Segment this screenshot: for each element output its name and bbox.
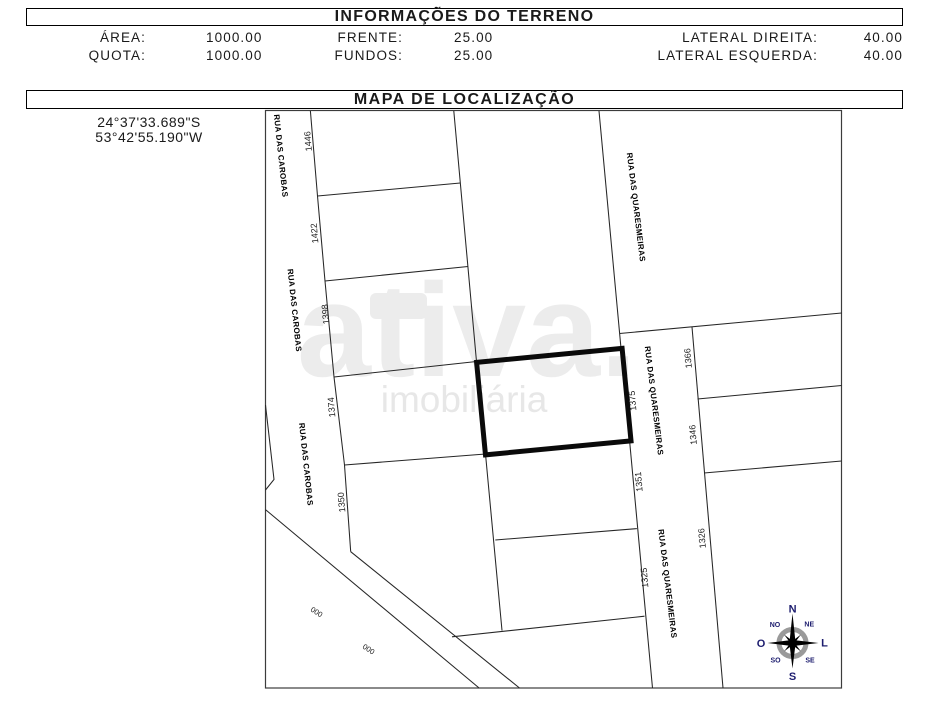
- svg-text:1422: 1422: [309, 223, 321, 244]
- svg-text:NO: NO: [770, 622, 781, 629]
- svg-text:RUA DAS QUARESMEIRAS: RUA DAS QUARESMEIRAS: [625, 152, 647, 262]
- svg-text:000: 000: [361, 642, 376, 656]
- svg-text:SE: SE: [805, 658, 815, 665]
- svg-text:1326: 1326: [696, 528, 708, 549]
- svg-text:imobiliária: imobiliária: [381, 379, 548, 420]
- svg-text:1398: 1398: [320, 304, 332, 325]
- svg-text:000: 000: [309, 605, 324, 619]
- svg-text:RUA DAS QUARESMEIRAS: RUA DAS QUARESMEIRAS: [656, 529, 678, 639]
- svg-text:RUA DAS QUARESMEIRAS: RUA DAS QUARESMEIRAS: [643, 346, 665, 456]
- svg-text:N: N: [789, 604, 797, 616]
- svg-text:RUA DAS CAROBAS: RUA DAS CAROBAS: [297, 422, 315, 506]
- svg-text:O: O: [757, 638, 766, 650]
- svg-text:1374: 1374: [326, 397, 338, 418]
- svg-text:RUA DAS CAROBAS: RUA DAS CAROBAS: [272, 114, 290, 198]
- svg-text:SO: SO: [770, 658, 781, 665]
- svg-text:1325: 1325: [639, 567, 651, 588]
- svg-text:1351: 1351: [633, 471, 645, 492]
- svg-text:S: S: [789, 671, 796, 683]
- svg-text:1375: 1375: [627, 390, 639, 411]
- svg-text:1366: 1366: [682, 348, 694, 369]
- svg-text:1446: 1446: [302, 131, 314, 152]
- svg-text:NE: NE: [804, 622, 814, 629]
- svg-text:1346: 1346: [687, 424, 699, 445]
- svg-text:1350: 1350: [336, 492, 348, 513]
- svg-text:L: L: [821, 638, 828, 650]
